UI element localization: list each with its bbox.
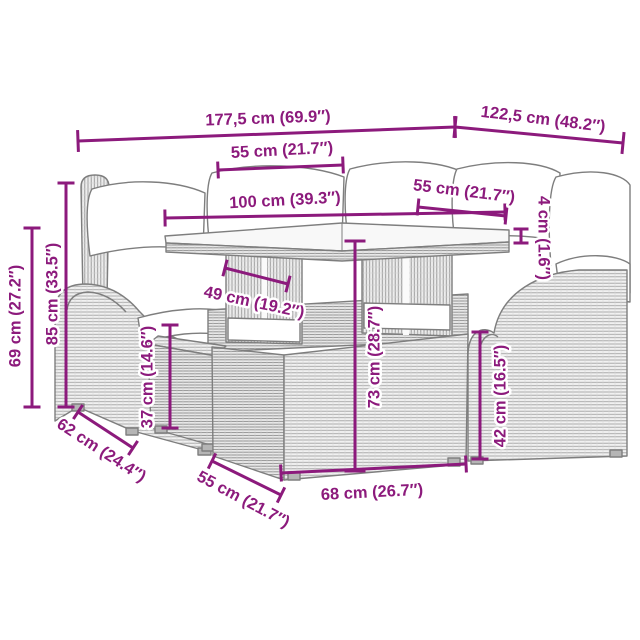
dim-line xyxy=(454,116,456,138)
sofa-foot xyxy=(126,428,138,435)
dim-line xyxy=(417,199,419,216)
dim-line xyxy=(78,127,455,141)
large-ottoman xyxy=(212,334,468,480)
dimension-diagram: 177,5 cm (69.9″)122,5 cm (48.2″)55 cm (2… xyxy=(0,0,640,640)
dim-line xyxy=(281,465,282,482)
dim-line xyxy=(128,441,137,455)
dim-line xyxy=(505,208,507,225)
dim-line xyxy=(218,162,219,179)
chair-foot xyxy=(610,450,622,457)
diagram-canvas: 177,5 cm (69.9″)122,5 cm (48.2″)55 cm (2… xyxy=(0,0,640,640)
dim-line xyxy=(343,157,344,174)
dim-label-ottoman-width: 68 cm (26.7″) xyxy=(320,481,423,504)
pedestal-shelf xyxy=(228,318,300,342)
dim-label-overall-width: 177,5 cm (69.9″) xyxy=(205,107,331,129)
dim-line xyxy=(78,130,79,152)
dim-label-tabletop-thickness: 4 cm (1.6″) xyxy=(535,196,553,280)
dim-arm-height: 69 cm (27.2″) xyxy=(6,228,40,407)
dim-label-seat-height: 42 cm (16.5″) xyxy=(491,345,509,447)
dim-overall-depth: 122,5 cm (48.2″) xyxy=(454,103,624,154)
dim-label-arm-height: 69 cm (27.2″) xyxy=(6,265,24,367)
dim-line xyxy=(622,132,624,154)
dim-label-table-height: 73 cm (28.7″) xyxy=(365,306,383,408)
dim-label-back-height: 85 cm (33.5″) xyxy=(43,243,61,345)
dim-label-ottoman-height: 37 cm (14.6″) xyxy=(138,326,156,428)
ottoman-left-face xyxy=(212,347,284,480)
dim-label-seat-width-top: 55 cm (21.7″) xyxy=(230,139,333,162)
dim-line xyxy=(466,456,467,473)
